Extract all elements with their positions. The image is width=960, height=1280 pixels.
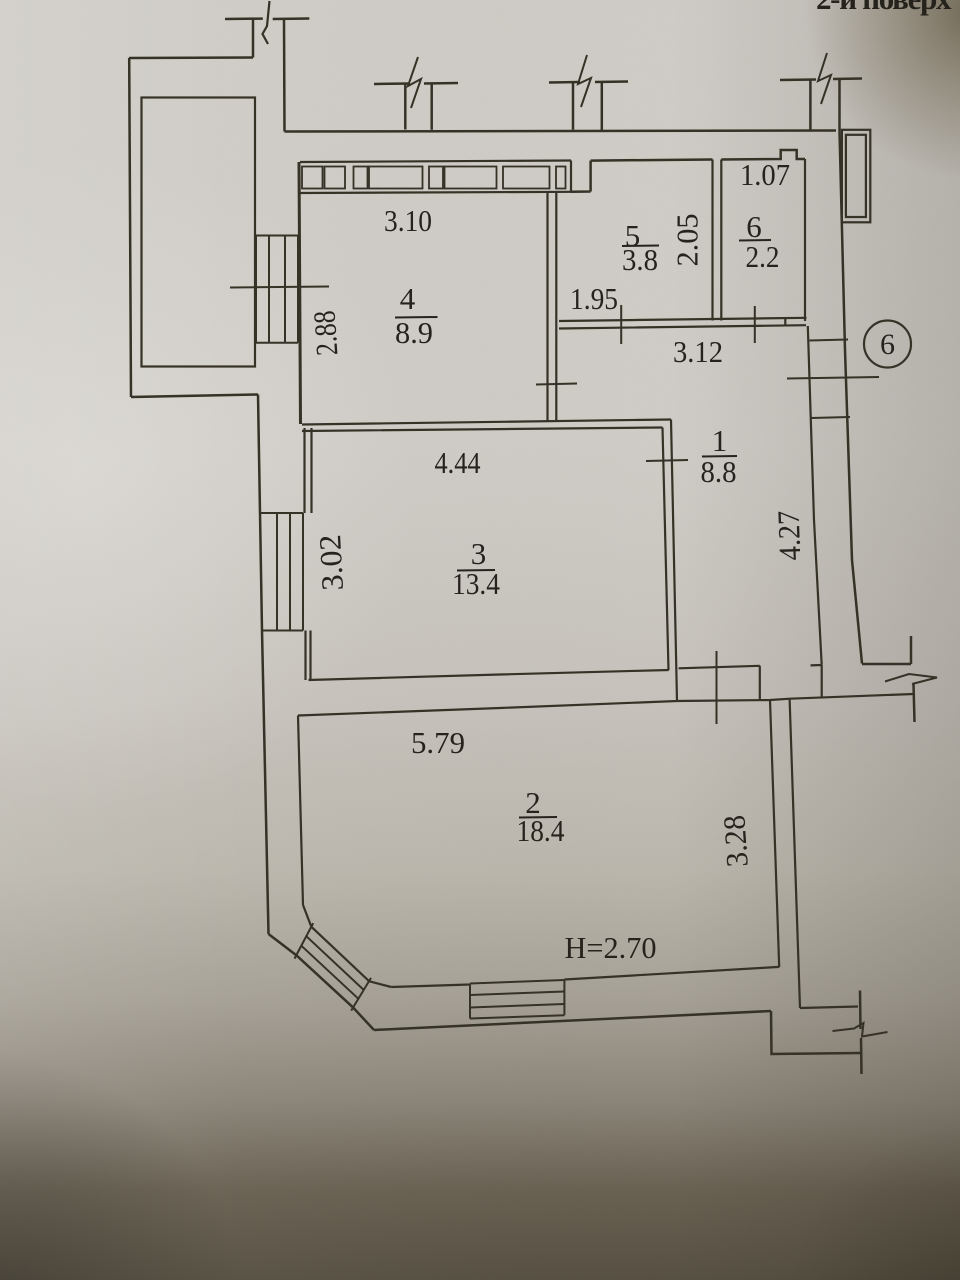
svg-text:3.8: 3.8 xyxy=(622,242,658,277)
svg-text:1.95: 1.95 xyxy=(570,281,618,316)
svg-text:2.05: 2.05 xyxy=(670,214,705,267)
svg-text:13.4: 13.4 xyxy=(452,566,500,601)
svg-text:H=2.70: H=2.70 xyxy=(565,930,657,965)
svg-text:8.8: 8.8 xyxy=(701,454,737,489)
svg-text:2-й поверх: 2-й поверх xyxy=(816,0,952,16)
svg-text:3.02: 3.02 xyxy=(312,534,350,592)
svg-text:2.88: 2.88 xyxy=(306,309,344,356)
svg-text:4.27: 4.27 xyxy=(771,510,808,561)
svg-text:1: 1 xyxy=(712,423,728,458)
svg-text:8.9: 8.9 xyxy=(395,315,433,350)
svg-text:3.10: 3.10 xyxy=(384,203,432,238)
svg-text:6: 6 xyxy=(880,328,895,361)
svg-text:5.79: 5.79 xyxy=(411,725,465,760)
svg-text:4: 4 xyxy=(400,281,416,316)
svg-text:4.44: 4.44 xyxy=(435,445,481,480)
svg-text:1.07: 1.07 xyxy=(740,157,790,192)
svg-text:2.2: 2.2 xyxy=(746,239,780,274)
svg-text:3.12: 3.12 xyxy=(673,334,723,369)
svg-text:18.4: 18.4 xyxy=(517,813,565,848)
svg-text:3.28: 3.28 xyxy=(716,814,755,868)
